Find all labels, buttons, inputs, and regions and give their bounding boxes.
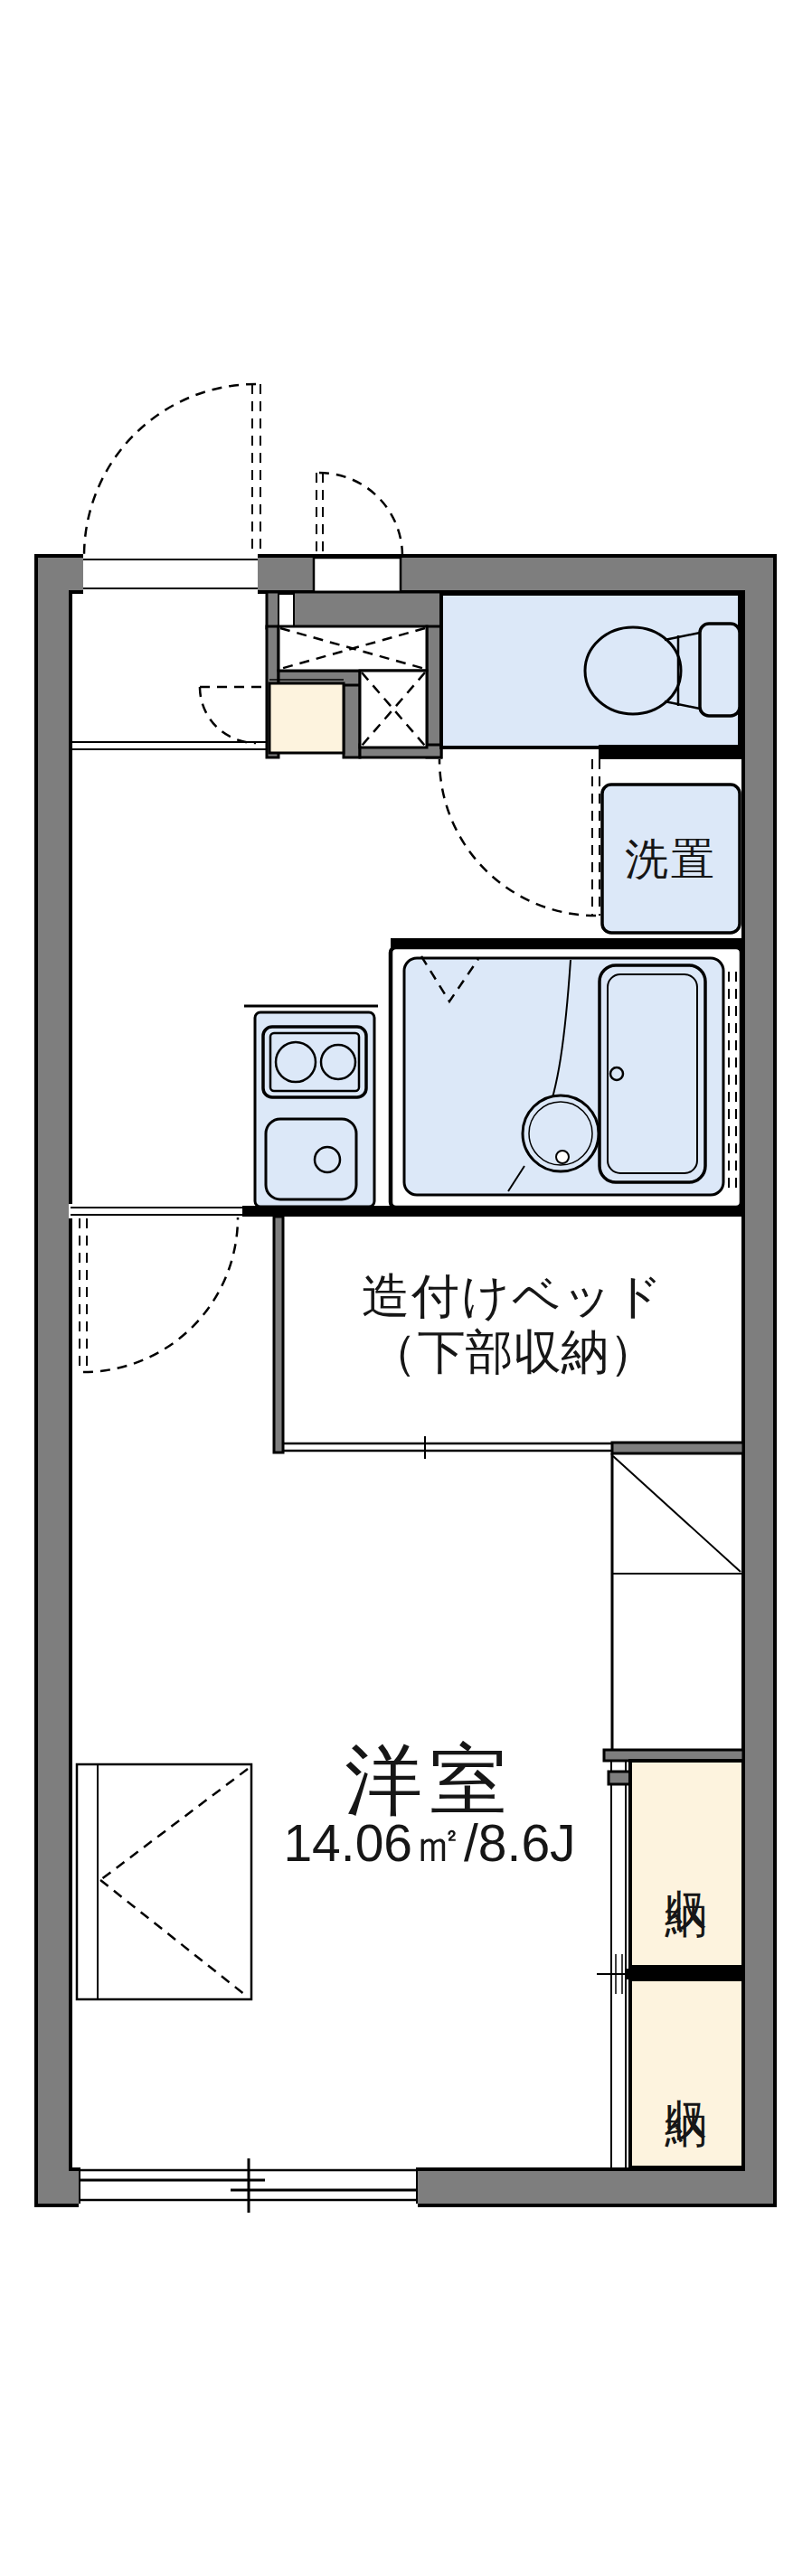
stove-icon [263, 1027, 366, 1097]
toilet-icon [585, 624, 740, 716]
entry-door-arc [84, 384, 260, 556]
kitchen [244, 1006, 378, 1207]
shoe-cabinet-door-arc [200, 687, 268, 743]
bed-label-line2: （下部収納） [285, 1327, 741, 1379]
shoe-cabinet [269, 680, 344, 753]
toilet-room [441, 594, 743, 759]
sink-icon [266, 1119, 356, 1199]
closet-column [604, 1453, 743, 1761]
entry-opening [83, 550, 258, 594]
washroom-door-arc [439, 759, 600, 916]
room-area-label: 14.06㎡/8.6J [158, 1815, 701, 1873]
floor-plan: 洗置 造付けベッド （下部収納） 洋室 14.06㎡/8.6J 収納 収納 [0, 0, 812, 2576]
washbasin-icon [523, 1095, 599, 1171]
storage-upper-label: 収納 [630, 1761, 743, 1967]
bed-label-line1: 造付けベッド [285, 1271, 741, 1323]
niche-door-arc [316, 473, 402, 556]
bay-window-icon [77, 1764, 251, 1999]
window-icon [79, 2158, 418, 2213]
laundry-label: 洗置 [602, 788, 740, 931]
bathroom [391, 938, 743, 1208]
storage-lower-label: 収納 [630, 1979, 743, 2167]
room-door-arc [80, 1217, 238, 1372]
bathtub-icon [600, 965, 705, 1182]
